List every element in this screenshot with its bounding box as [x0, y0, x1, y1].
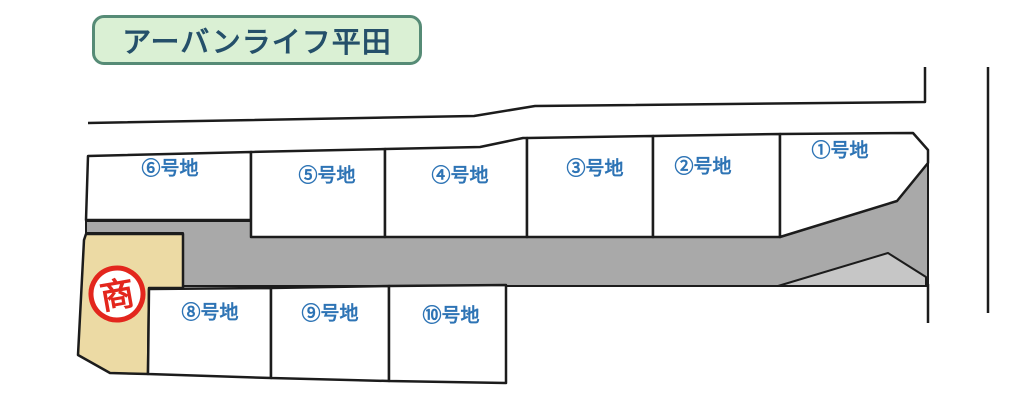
- lot-1-label: ①号地: [811, 139, 868, 162]
- lot-3-label: ③号地: [566, 157, 623, 180]
- development-title-text: アーバンライフ平田: [122, 19, 391, 61]
- stamp-text: 商: [97, 274, 137, 317]
- lot-4-label: ④号地: [431, 164, 488, 187]
- lot-3-shape: [527, 136, 653, 237]
- lot-4-shape: [385, 138, 527, 237]
- lot-10-label: ⑩号地: [422, 304, 479, 327]
- lot-8-shape: [148, 288, 271, 378]
- lot-10-shape: [389, 285, 506, 383]
- north-boundary-line: [88, 67, 925, 123]
- lot-9-shape: [271, 286, 389, 381]
- lot-map-canvas: ①号地 ②号地 ③号地 ④号地 ⑤号地 ⑥号地 ⑧号地 ⑨号地 ⑩号地 商 アー…: [0, 0, 1024, 418]
- lot-2-shape: [653, 134, 780, 237]
- lot-5-label: ⑤号地: [298, 164, 355, 187]
- lot-5-shape: [251, 149, 385, 237]
- lot-6-label: ⑥号地: [141, 157, 198, 180]
- lot-9-label: ⑨号地: [301, 302, 358, 325]
- development-title-plate: アーバンライフ平田: [92, 15, 422, 65]
- lot-2-label: ②号地: [674, 155, 731, 178]
- lot-8-label: ⑧号地: [181, 301, 238, 324]
